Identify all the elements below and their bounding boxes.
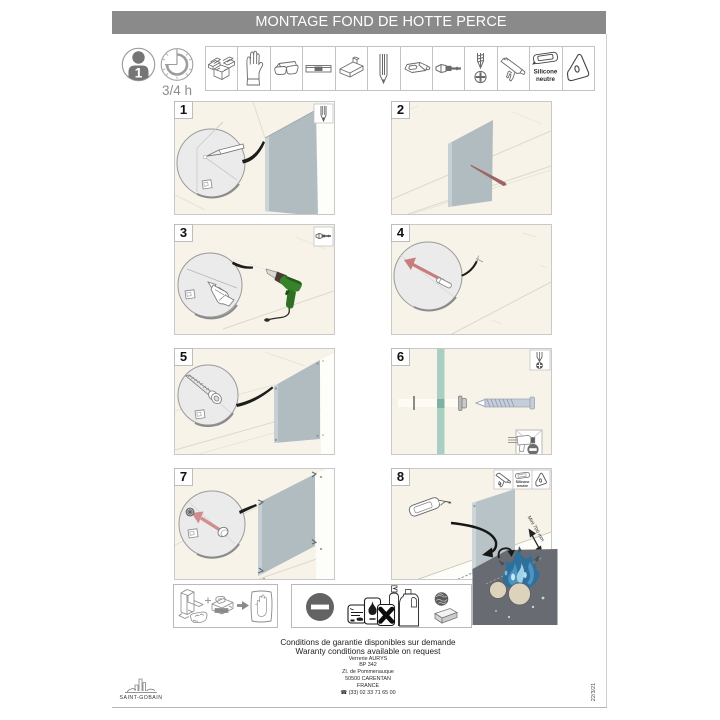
svg-text:1: 1	[135, 65, 143, 81]
svg-text:neutre: neutre	[517, 484, 528, 488]
svg-text:neutre: neutre	[536, 76, 555, 83]
svg-text:SAINT-GOBAIN: SAINT-GOBAIN	[120, 695, 163, 701]
svg-text:Silicone: Silicone	[534, 69, 558, 76]
